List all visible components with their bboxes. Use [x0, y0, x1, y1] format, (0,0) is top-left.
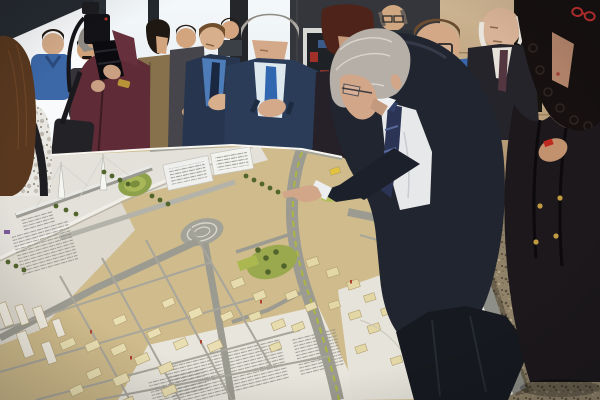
photo-scene: Officials, journalists and photographers…: [0, 0, 600, 400]
vignette-overlay: [0, 0, 600, 400]
scene-canvas: КОНЦЕПЦИЯ Р: [0, 0, 600, 400]
